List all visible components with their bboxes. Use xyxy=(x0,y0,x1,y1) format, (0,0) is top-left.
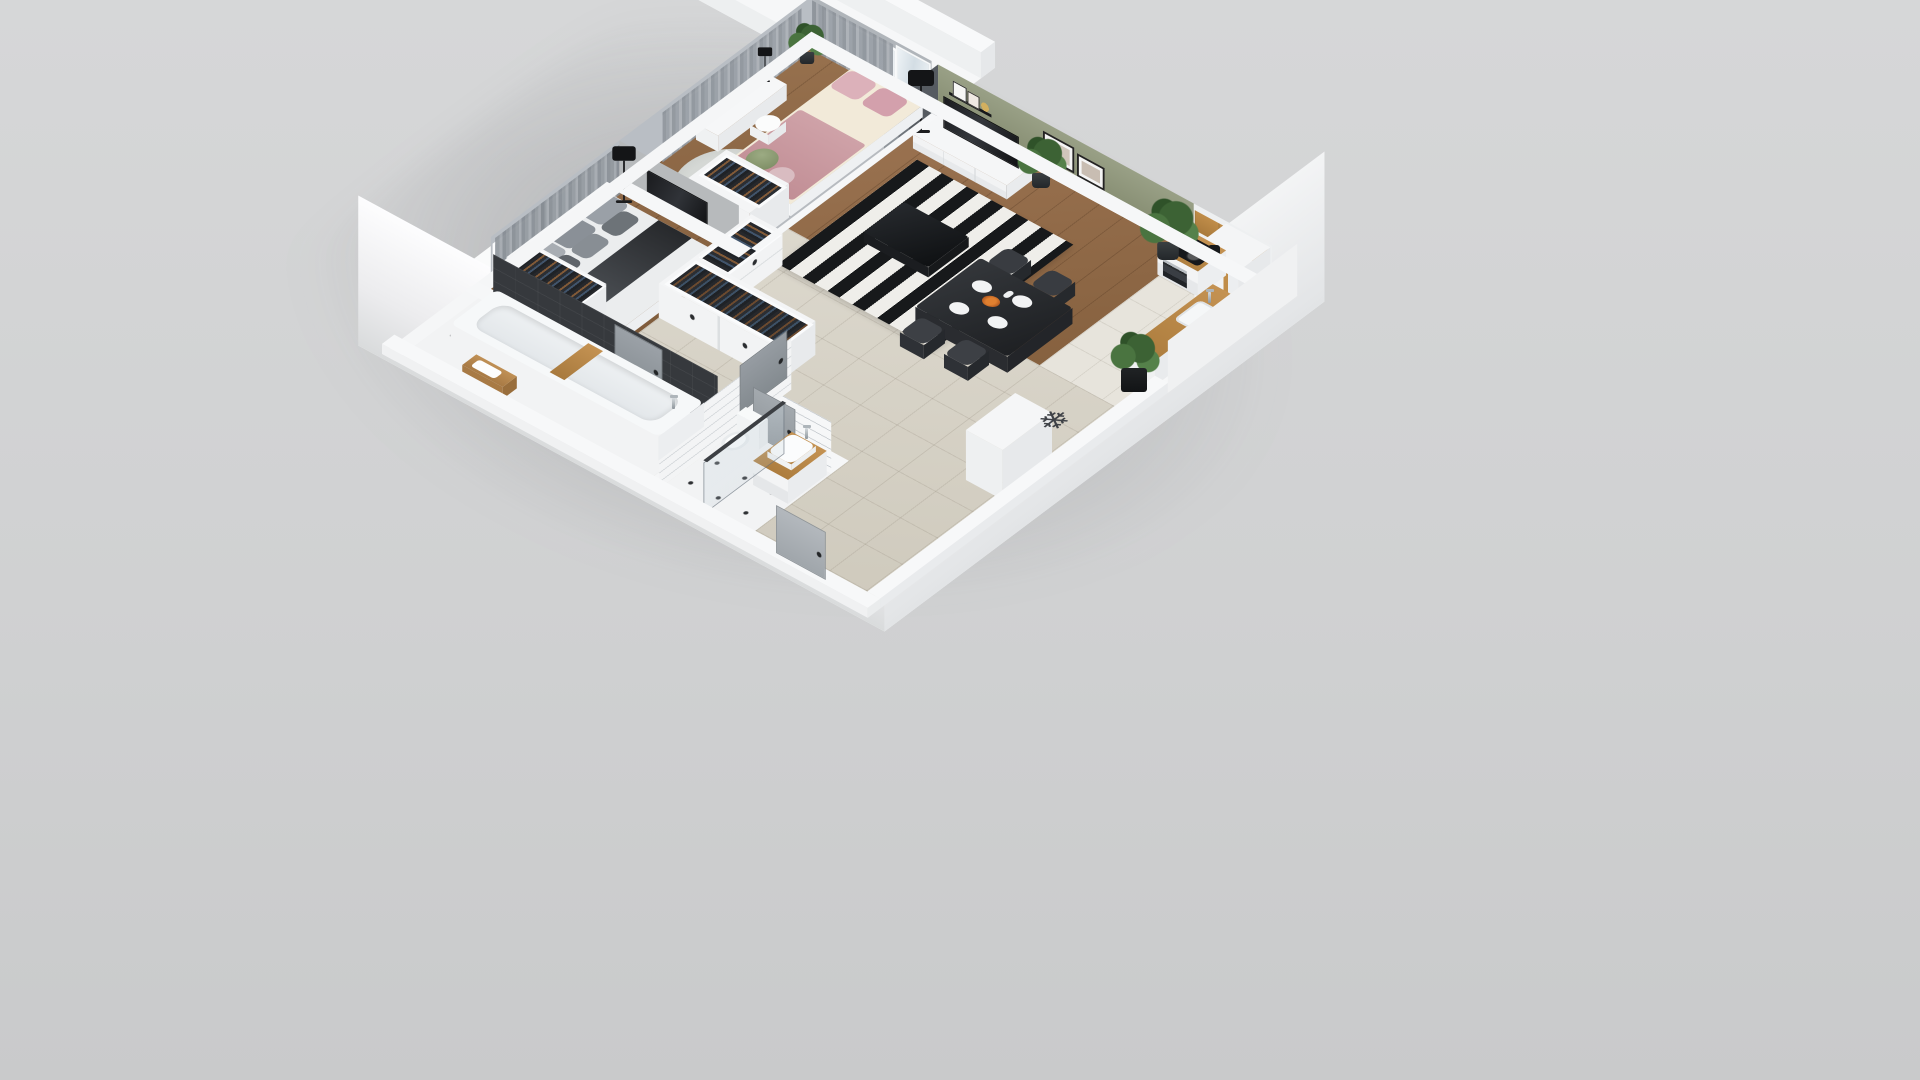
entry-big-plant-part xyxy=(1121,368,1147,392)
kitchen-faucet xyxy=(1206,291,1214,303)
vanity-faucet-part xyxy=(805,428,808,439)
apartment-3d-floorplan-render: ❄ xyxy=(0,0,1920,1080)
master-floor-lamp-part xyxy=(612,146,635,160)
bathtub-faucet-part xyxy=(672,398,675,409)
kid-desk-lamp-part xyxy=(758,47,772,56)
master-floor-lamp-part xyxy=(616,200,632,203)
living-floor-lamp-part xyxy=(908,70,934,86)
vanity-faucet xyxy=(803,427,811,439)
bathtub-faucet xyxy=(670,397,678,409)
kitchen-faucet-part xyxy=(1208,292,1211,303)
entry-big-plant xyxy=(1107,330,1161,392)
